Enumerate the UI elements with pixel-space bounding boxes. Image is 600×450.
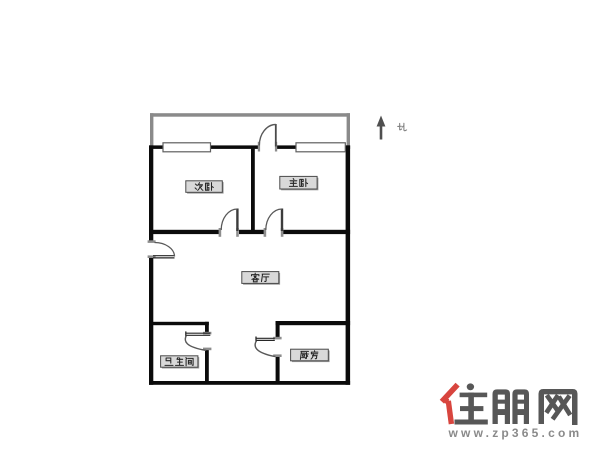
- svg-text:www.zp365.com: www.zp365.com: [448, 426, 583, 440]
